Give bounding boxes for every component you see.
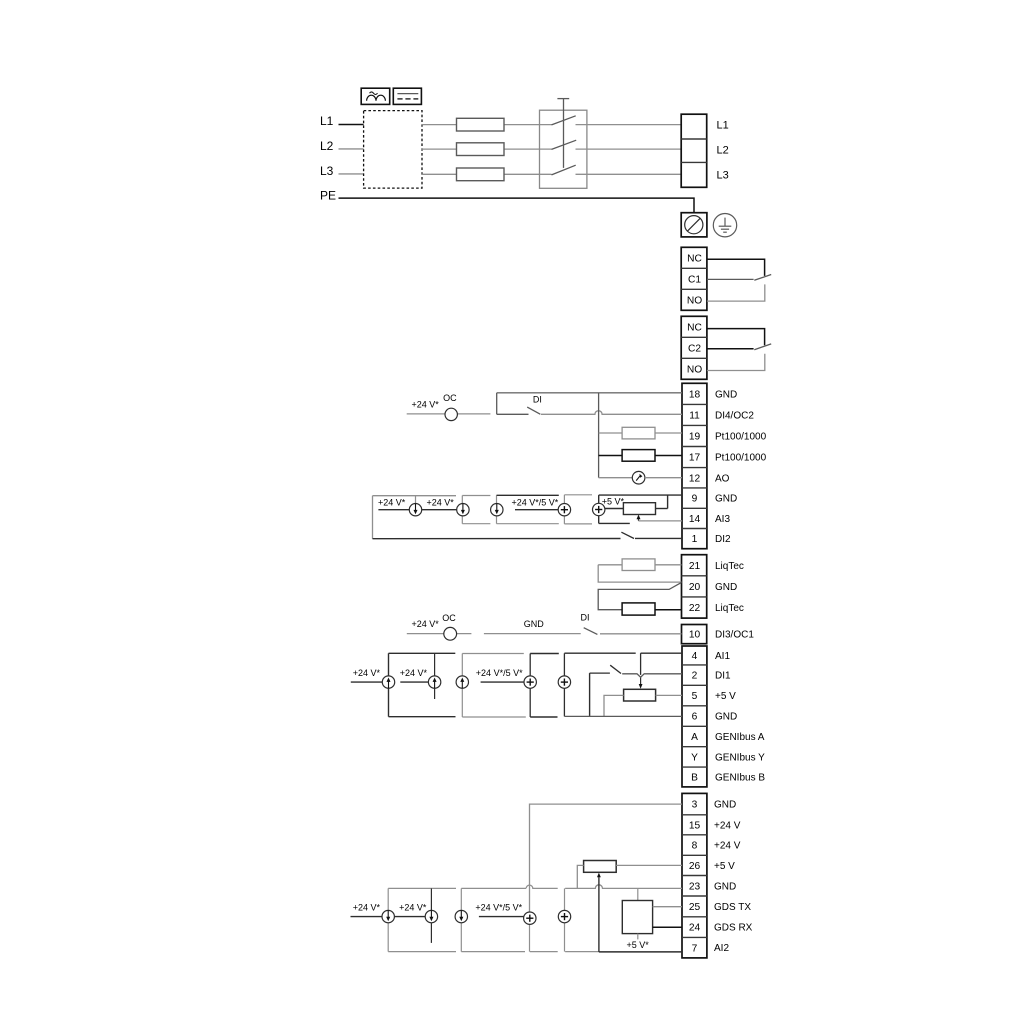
svg-text:+24 V*/5 V*: +24 V*/5 V*	[512, 498, 559, 508]
svg-text:DI: DI	[533, 394, 542, 404]
svg-text:LiqTec: LiqTec	[715, 603, 744, 614]
svg-text:+24 V*: +24 V*	[399, 902, 427, 912]
svg-text:NO: NO	[687, 295, 702, 306]
svg-text:18: 18	[689, 389, 701, 400]
svg-text:OC: OC	[443, 393, 457, 403]
svg-text:AI2: AI2	[714, 943, 729, 954]
svg-text:8: 8	[692, 841, 698, 852]
svg-text:PE: PE	[320, 189, 336, 203]
svg-text:DI3/OC1: DI3/OC1	[715, 630, 754, 641]
svg-text:GND: GND	[715, 389, 737, 400]
svg-text:AI3: AI3	[715, 514, 730, 525]
svg-text:L3: L3	[717, 169, 729, 181]
svg-text:+5 V*: +5 V*	[626, 940, 649, 950]
svg-text:+24 V*: +24 V*	[353, 668, 381, 678]
svg-text:+5 V: +5 V	[715, 691, 736, 702]
svg-text:+24 V*: +24 V*	[353, 902, 381, 912]
svg-text:GND: GND	[715, 582, 737, 593]
svg-text:GENIbus A: GENIbus A	[715, 732, 765, 743]
svg-text:+24 V*: +24 V*	[427, 498, 455, 508]
svg-text:DI: DI	[581, 613, 590, 623]
svg-text:4: 4	[692, 651, 698, 662]
svg-text:LiqTec: LiqTec	[715, 561, 744, 572]
svg-text:+24 V*/5 V*: +24 V*/5 V*	[475, 902, 522, 912]
svg-text:3: 3	[692, 800, 698, 811]
svg-text:+24 V*: +24 V*	[412, 399, 440, 409]
svg-text:GND: GND	[715, 494, 737, 505]
svg-text:6: 6	[692, 712, 698, 723]
svg-text:11: 11	[689, 411, 700, 422]
svg-text:7: 7	[692, 943, 698, 954]
svg-text:NO: NO	[687, 364, 702, 375]
svg-text:GDS RX: GDS RX	[714, 923, 753, 934]
svg-text:C2: C2	[688, 343, 701, 354]
svg-text:21: 21	[689, 561, 701, 572]
svg-text:GND: GND	[524, 619, 545, 629]
svg-text:26: 26	[689, 861, 701, 872]
svg-text:GND: GND	[714, 881, 736, 892]
svg-text:OC: OC	[442, 613, 456, 623]
svg-text:L1: L1	[717, 120, 729, 132]
svg-text:17: 17	[689, 453, 701, 464]
svg-text:Pt100/1000: Pt100/1000	[715, 431, 767, 442]
svg-text:10: 10	[689, 630, 701, 641]
svg-text:23: 23	[689, 881, 701, 892]
svg-text:Pt100/1000: Pt100/1000	[715, 453, 767, 464]
svg-text:+24 V*: +24 V*	[412, 619, 440, 629]
svg-text:+24 V: +24 V	[714, 820, 741, 831]
svg-text:DI2: DI2	[715, 534, 731, 545]
svg-text:DI1: DI1	[715, 671, 731, 682]
svg-text:GND: GND	[714, 800, 736, 811]
svg-text:14: 14	[689, 514, 701, 525]
svg-text:GENIbus Y: GENIbus Y	[715, 752, 765, 763]
svg-text:B: B	[691, 773, 698, 784]
svg-text:2: 2	[692, 671, 698, 682]
svg-text:1: 1	[692, 534, 698, 545]
svg-text:+24 V*: +24 V*	[378, 498, 406, 508]
svg-text:20: 20	[689, 582, 701, 593]
svg-text:L1: L1	[320, 114, 334, 128]
svg-text:+24 V*: +24 V*	[400, 668, 428, 678]
svg-text:GDS TX: GDS TX	[714, 902, 751, 913]
svg-text:DI4/OC2: DI4/OC2	[715, 410, 754, 421]
svg-text:12: 12	[689, 473, 701, 484]
svg-text:5: 5	[692, 691, 698, 702]
svg-text:NC: NC	[687, 322, 702, 333]
svg-text:L2: L2	[717, 144, 729, 156]
svg-text:NC: NC	[687, 253, 702, 264]
svg-text:L3: L3	[320, 164, 334, 178]
svg-text:22: 22	[689, 603, 701, 614]
svg-text:AO: AO	[715, 473, 730, 484]
svg-text:+5 V*: +5 V*	[602, 497, 625, 507]
svg-text:15: 15	[689, 820, 701, 831]
svg-text:+24 V*/5 V*: +24 V*/5 V*	[476, 668, 523, 678]
svg-text:GENIbus B: GENIbus B	[715, 773, 765, 784]
svg-text:AI1: AI1	[715, 651, 730, 662]
svg-text:+5 V: +5 V	[714, 861, 735, 872]
svg-text:+24 V: +24 V	[714, 841, 741, 852]
svg-text:Y: Y	[691, 753, 698, 764]
svg-text:C1: C1	[688, 274, 701, 285]
svg-text:9: 9	[692, 494, 698, 505]
svg-text:GND: GND	[715, 712, 737, 723]
svg-text:19: 19	[689, 432, 701, 443]
svg-text:A: A	[691, 732, 698, 743]
svg-text:L2: L2	[320, 139, 334, 153]
svg-text:25: 25	[689, 902, 701, 913]
svg-text:24: 24	[689, 923, 701, 934]
